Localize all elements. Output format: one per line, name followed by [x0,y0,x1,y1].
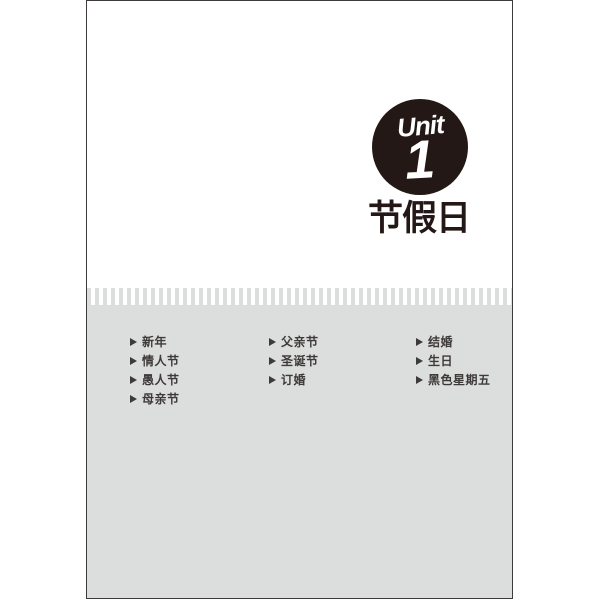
book-page-image: Unit 1 节假日 新年 情人节 愚人节 [0,0,600,600]
topic-label: 订婚 [281,371,306,388]
page-frame: Unit 1 节假日 新年 情人节 愚人节 [86,0,513,599]
topics-column-3: 结婚 生日 黑色星期五 [416,332,491,389]
triangle-bullet-icon [130,357,137,365]
topic-label: 黑色星期五 [428,371,491,388]
perforated-edge [87,288,512,305]
topic-item: 母亲节 [130,389,180,408]
topic-label: 圣诞节 [281,352,319,369]
triangle-bullet-icon [130,338,137,346]
topic-label: 新年 [142,333,167,350]
unit-number: 1 [404,137,436,184]
topic-item: 黑色星期五 [416,370,491,389]
unit-badge: Unit 1 [372,99,468,195]
topic-item: 结婚 [416,332,491,351]
triangle-bullet-icon [130,376,137,384]
topic-item: 父亲节 [269,332,319,351]
topics-column-2: 父亲节 圣诞节 订婚 [269,332,319,389]
triangle-bullet-icon [416,338,423,346]
triangle-bullet-icon [269,357,276,365]
topic-item: 愚人节 [130,370,180,389]
topics-column-1: 新年 情人节 愚人节 母亲节 [130,332,180,408]
topic-label: 结婚 [428,333,453,350]
topic-item: 订婚 [269,370,319,389]
topic-label: 愚人节 [142,371,180,388]
topic-label: 母亲节 [142,390,180,407]
triangle-bullet-icon [130,395,137,403]
triangle-bullet-icon [269,376,276,384]
topic-item: 新年 [130,332,180,351]
topic-item: 圣诞节 [269,351,319,370]
triangle-bullet-icon [416,376,423,384]
topic-label: 父亲节 [281,333,319,350]
triangle-bullet-icon [269,338,276,346]
triangle-bullet-icon [416,357,423,365]
topic-item: 生日 [416,351,491,370]
topic-label: 情人节 [142,352,180,369]
topic-label: 生日 [428,352,453,369]
topic-item: 情人节 [130,351,180,370]
unit-title: 节假日 [324,200,514,239]
